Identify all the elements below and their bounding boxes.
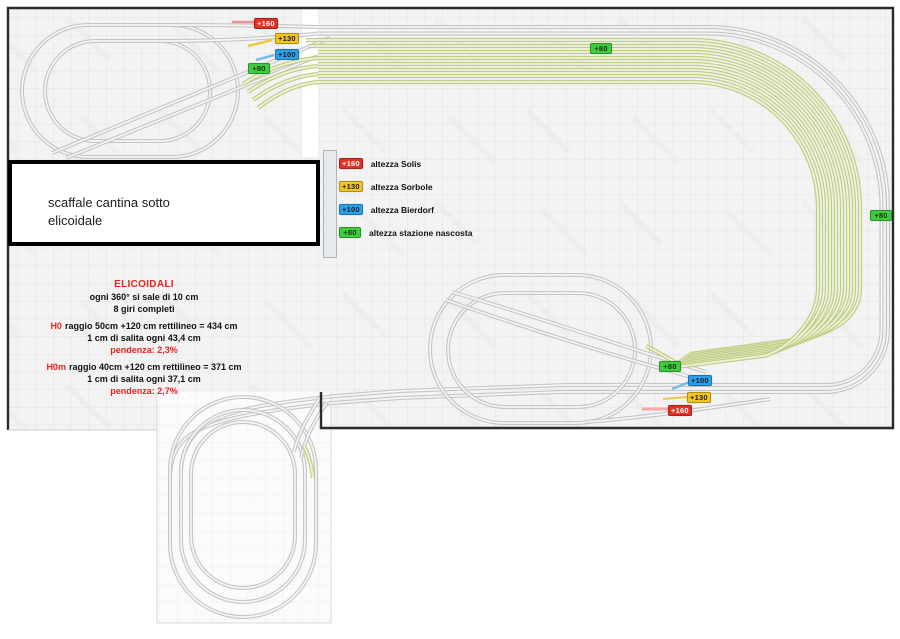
legend-chip-130: +130	[339, 181, 363, 192]
height-marker-160-bottom: +160	[668, 405, 692, 416]
height-marker-130-bottom: +130	[687, 392, 711, 403]
legend-row-solis: +160 altezza Solis	[339, 152, 472, 175]
legend-chip-160: +160	[339, 158, 363, 169]
legend-chip-100: +100	[339, 204, 363, 215]
legend-label-stazione-nascosta: altezza stazione nascosta	[369, 228, 472, 238]
note-box-line1: scaffale cantina sotto	[48, 194, 170, 212]
helix-notes-subtitle2: 8 giri completi	[8, 303, 280, 315]
height-marker-80-topleft: +80	[248, 63, 270, 74]
helix-notes-h0m-line2: 1 cm di salita ogni 37,1 cm	[8, 373, 280, 385]
height-marker-160-topleft: +160	[254, 18, 278, 29]
note-box-line2: elicoidale	[48, 212, 170, 230]
helix-notes-h0m-grade: pendenza: 2,7%	[8, 385, 280, 397]
legend-row-stazione-nascosta: +80 altezza stazione nascosta	[339, 221, 472, 244]
helix-notes-h0-grade: pendenza: 2,3%	[8, 344, 280, 356]
helix-notes-h0-line2: 1 cm di salita ogni 43,4 cm	[8, 332, 280, 344]
helix-notes-h0m-line1: H0mraggio 40cm +120 cm rettilineo = 371 …	[8, 361, 280, 373]
track-plan-page: scaffale cantina sotto elicoidale +160 a…	[0, 0, 900, 639]
height-marker-100-topleft: +100	[275, 49, 299, 60]
legend-row-sorbole: +130 altezza Sorbole	[339, 175, 472, 198]
height-marker-80-right: +80	[870, 210, 892, 221]
legend-row-bierdorf: +100 altezza Bierdorf	[339, 198, 472, 221]
height-marker-80-bottom: +80	[659, 361, 681, 372]
legend-chip-80: +80	[339, 227, 361, 238]
helix-notes-h0-line1: H0raggio 50cm +120 cm rettilineo = 434 c…	[8, 320, 280, 332]
helix-notes-subtitle1: ogni 360° si sale di 10 cm	[8, 291, 280, 303]
legend: +160 altezza Solis +130 altezza Sorbole …	[339, 152, 472, 244]
note-box: scaffale cantina sotto elicoidale	[8, 160, 320, 246]
legend-label-solis: altezza Solis	[371, 159, 422, 169]
legend-label-bierdorf: altezza Bierdorf	[371, 205, 434, 215]
height-marker-100-bottom: +100	[688, 375, 712, 386]
height-marker-80-top: +80	[590, 43, 612, 54]
shelf-bar	[323, 150, 337, 258]
helix-notes: ELICOIDALI ogni 360° si sale di 10 cm 8 …	[8, 279, 280, 397]
legend-label-sorbole: altezza Sorbole	[371, 182, 433, 192]
helix-notes-title: ELICOIDALI	[8, 279, 280, 291]
height-marker-130-topleft: +130	[275, 33, 299, 44]
